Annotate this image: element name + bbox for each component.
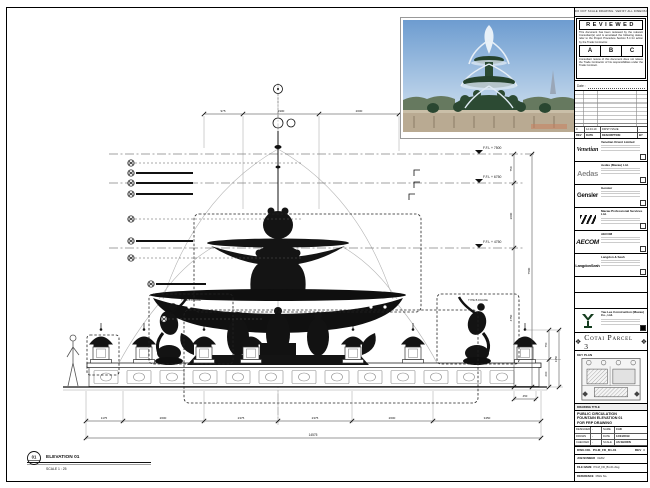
contractor-name: Yau Lee Construction (Macau) Co., Ltd. bbox=[601, 311, 645, 318]
elevation-label: ELEVATION 01 bbox=[46, 454, 80, 460]
dim-b2: 2600 bbox=[160, 416, 167, 420]
revision-col-rev: REV bbox=[575, 133, 585, 138]
file-name-label: FILE NAME bbox=[577, 466, 591, 469]
review-stamp-note: Consultant review of this document does … bbox=[579, 58, 643, 68]
consultant-name: Macau Professional Services Ltd. bbox=[601, 210, 645, 217]
dim-pbase: 450 bbox=[523, 394, 528, 398]
rev-label: REV bbox=[635, 448, 641, 452]
key-plan-section: KEY PLAN bbox=[575, 351, 647, 404]
venetian-logo: Venetian bbox=[577, 147, 599, 153]
dim-top-1: 975 bbox=[220, 109, 225, 113]
job-number-row: JOB NUMBER 31202 bbox=[575, 455, 647, 464]
revision-col-date: DATE bbox=[585, 133, 601, 138]
rev-value: 0 bbox=[643, 448, 645, 452]
top-dimension-chain: 975 1900 2000 bbox=[202, 109, 401, 209]
dim-b6: 3450 bbox=[484, 416, 491, 420]
review-stamp-body: This document has been reviewed by the r… bbox=[579, 31, 643, 44]
drawing-sheet-page: F.F.L + 7500 F.F.L + 6750 F.F.L + 4750 F… bbox=[0, 0, 650, 488]
consultant-name: Gensler bbox=[601, 187, 645, 190]
dim-b3: 2375 bbox=[238, 416, 245, 420]
review-status-b[interactable]: B bbox=[601, 46, 622, 56]
stamp-date-field[interactable] bbox=[588, 83, 645, 89]
dwg-number-value: P3-M_FD_B1-01 bbox=[593, 448, 633, 452]
project-emblem-right-icon: ❖ bbox=[641, 338, 647, 346]
reference-photo-image bbox=[403, 20, 574, 132]
sheet-note-strip: DO NOT SCALE DRAWING. VERIFY ALL DIMENSI… bbox=[575, 8, 647, 17]
consultant-block-gensler: Gensler Gensler bbox=[575, 185, 647, 208]
level-label-4750: F.F.L + 4750 bbox=[483, 240, 502, 244]
elevation-marker-number: 01 bbox=[32, 455, 37, 460]
dwg-number-row: DWG NO. P3-M_FD_B1-01 REV 0 bbox=[575, 446, 647, 453]
consultant-name: Venetian Orient Limited bbox=[601, 141, 645, 144]
reference-row: REFERENCE DWG No. bbox=[575, 473, 647, 481]
stamp-date-label: Date : bbox=[577, 84, 586, 88]
stamp-date-row: Date : bbox=[575, 81, 647, 91]
ground-line bbox=[63, 387, 563, 390]
dwg-number-label: DWG NO. bbox=[577, 448, 591, 452]
revision-table: 0 12.04.19 FIRST ISSUE - REV DATE DESCRI… bbox=[575, 91, 647, 139]
consultant-address-lines bbox=[601, 218, 640, 224]
consultant-checkbox[interactable] bbox=[640, 246, 646, 252]
dim-p2: 600 bbox=[544, 371, 548, 376]
yau-lee-logo bbox=[581, 313, 595, 329]
gensler-logo: Gensler bbox=[577, 193, 598, 199]
sheet-border: F.F.L + 7500 F.F.L + 6750 F.F.L + 4750 F… bbox=[6, 7, 648, 482]
callout-label-left: TYPE B FIGURE bbox=[181, 298, 201, 302]
mps-logo bbox=[580, 215, 596, 224]
consultant-checkbox[interactable] bbox=[640, 223, 646, 229]
consultant-checkbox[interactable] bbox=[640, 200, 646, 206]
dim-b4: 2375 bbox=[312, 416, 319, 420]
dim-b1: 1175 bbox=[101, 416, 108, 420]
dim-v2: 2000 bbox=[509, 212, 513, 219]
reference-label: REFERENCE bbox=[577, 475, 594, 478]
contractor-block: Yau Lee Construction (Macau) Co., Ltd. bbox=[575, 309, 647, 333]
drawing-title-line3: FOR FRP DRAWING bbox=[577, 421, 645, 426]
scale-person bbox=[67, 335, 79, 386]
level-label-6750: F.F.L + 6750 bbox=[483, 175, 502, 179]
dim-vtotal: 7500 bbox=[527, 267, 531, 274]
consultant-block-langdonseah: LangdonSeah Langdon & Seah bbox=[575, 254, 647, 277]
dim-v1: 750 bbox=[509, 166, 513, 171]
drawing-title-block: DRAWING TITLE PUBLIC CIRCULATION FOUNTAI… bbox=[575, 404, 647, 455]
elevation-scale-label: SCALE 1 : 25 bbox=[46, 467, 67, 471]
dim-ptotal: 1350 bbox=[554, 355, 558, 362]
dim-top-3: 2000 bbox=[356, 109, 363, 113]
review-stamp-title: REVIEWED bbox=[579, 20, 643, 30]
triton-figure-right bbox=[459, 297, 491, 365]
consultant-name: Aedas (Macau) Ltd. bbox=[601, 164, 645, 167]
review-status-a[interactable]: A bbox=[580, 46, 601, 56]
level-labels: F.F.L + 7500 F.F.L + 6750 F.F.L + 4750 F… bbox=[483, 146, 502, 383]
project-emblem-left-icon: ❖ bbox=[575, 338, 581, 346]
consultant-address-lines bbox=[601, 237, 640, 243]
review-status-c[interactable]: C bbox=[622, 46, 642, 56]
callout-label-right: TYPE B FIGURE bbox=[468, 298, 488, 302]
consultant-checkbox[interactable] bbox=[640, 177, 646, 183]
consultant-checkbox[interactable] bbox=[640, 154, 646, 160]
reference-value: DWG No. bbox=[596, 475, 608, 478]
review-stamp: REVIEWED This document has been reviewed… bbox=[575, 17, 647, 81]
contractor-address-lines bbox=[601, 319, 640, 325]
job-number-label: JOB NUMBER bbox=[577, 457, 595, 460]
basin-wall bbox=[87, 363, 541, 387]
photo-watermark bbox=[531, 124, 567, 129]
revision-col-desc: DESCRIPTION bbox=[601, 133, 638, 138]
consultant-name: Langdon & Seah bbox=[601, 256, 645, 259]
corner-marks bbox=[409, 170, 420, 200]
dim-btotal: 14575 bbox=[309, 433, 318, 437]
consultant-address-lines bbox=[601, 191, 640, 197]
elevation-title: 01 ELEVATION 01 SCALE 1 : 25 bbox=[27, 452, 151, 472]
consultant-checkbox[interactable] bbox=[640, 269, 646, 275]
title-block-fields: DESIGNED - NAME CAD DRAWN - DATE 12/04/2… bbox=[575, 426, 647, 446]
file-name-row: FILE NAME P3-M_FD_B1-01.dwg bbox=[575, 464, 647, 473]
consultant-block-mps: Macau Professional Services Ltd. bbox=[575, 208, 647, 231]
bottom-dimension-chains: 1175 2600 2375 2375 2600 3450 14575 bbox=[84, 391, 543, 440]
consultant-address-lines bbox=[601, 260, 640, 266]
sheet-note-text: DO NOT SCALE DRAWING. VERIFY ALL DIMENSI… bbox=[575, 10, 647, 13]
consultant-address-lines bbox=[601, 168, 640, 174]
empty-consultant-box-1 bbox=[575, 277, 647, 293]
langdon-seah-logo: LangdonSeah bbox=[575, 263, 599, 268]
level-label-7500: F.F.L + 7500 bbox=[483, 146, 502, 150]
consultant-address-lines bbox=[601, 145, 640, 151]
project-title-banner: ❖ Cotai Parcel 3 ❖ bbox=[575, 333, 647, 351]
drawing-title-header: DRAWING TITLE bbox=[575, 404, 647, 411]
revision-col-by: BY bbox=[638, 133, 647, 138]
dim-p1: 750 bbox=[544, 342, 548, 347]
key-plan-label: KEY PLAN bbox=[577, 353, 592, 357]
dim-v3: 4750 bbox=[509, 314, 513, 321]
empty-consultant-box-2 bbox=[575, 293, 647, 309]
revision-empty-rows bbox=[575, 91, 647, 126]
level-lines bbox=[109, 154, 534, 248]
dim-top-2: 1900 bbox=[278, 109, 285, 113]
dim-b5: 2600 bbox=[389, 416, 396, 420]
revision-header-row: REV DATE DESCRIPTION BY bbox=[575, 132, 647, 138]
consultant-block-aecom: AECOM AECOM bbox=[575, 231, 647, 254]
aecom-logo: AECOM bbox=[576, 239, 599, 246]
file-name-value: P3-M_FD_B1-01.dwg bbox=[593, 466, 619, 469]
consultant-block-aedas: Aedas Aedas (Macau) Ltd. bbox=[575, 162, 647, 185]
title-block-sidebar: DO NOT SCALE DRAWING. VERIFY ALL DIMENSI… bbox=[574, 8, 647, 481]
aedas-logo: Aedas bbox=[577, 169, 598, 178]
consultant-name: AECOM bbox=[601, 233, 645, 236]
job-number-value: 31202 bbox=[597, 457, 604, 460]
reference-photo bbox=[401, 18, 580, 138]
key-plan-map bbox=[579, 358, 643, 401]
consultant-block-venetian: Venetian Venetian Orient Limited bbox=[575, 139, 647, 162]
contractor-checkbox bbox=[640, 325, 646, 331]
project-title: Cotai Parcel 3 bbox=[584, 333, 637, 351]
review-status-options: A B C bbox=[579, 45, 643, 57]
